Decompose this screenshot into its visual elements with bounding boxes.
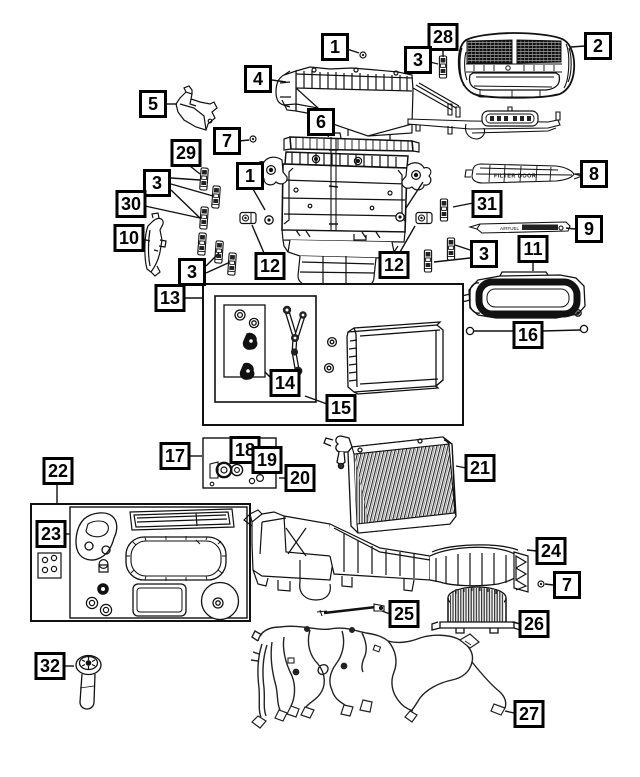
svg-text:3: 3: [187, 262, 197, 282]
svg-text:9: 9: [584, 219, 594, 239]
svg-text:10: 10: [119, 228, 139, 248]
svg-text:15: 15: [331, 398, 351, 418]
svg-text:7: 7: [222, 131, 232, 151]
svg-text:27: 27: [519, 704, 539, 724]
svg-text:A/RFUEL: A/RFUEL: [500, 226, 520, 231]
svg-text:6: 6: [316, 112, 326, 132]
svg-text:5: 5: [148, 94, 158, 114]
svg-text:14: 14: [275, 373, 295, 393]
svg-text:24: 24: [541, 541, 561, 561]
svg-text:20: 20: [290, 468, 310, 488]
svg-text:1: 1: [245, 166, 255, 186]
svg-text:28: 28: [433, 27, 453, 47]
svg-text:2: 2: [593, 36, 603, 56]
svg-text:11: 11: [523, 239, 542, 259]
svg-text:4: 4: [253, 69, 263, 89]
svg-text:26: 26: [524, 614, 544, 634]
svg-text:3: 3: [152, 173, 162, 193]
svg-text:29: 29: [176, 143, 196, 163]
svg-text:17: 17: [165, 446, 185, 466]
svg-text:21: 21: [470, 458, 490, 478]
svg-text:8: 8: [589, 164, 599, 184]
svg-text:FILTER DOOR: FILTER DOOR: [494, 174, 536, 180]
svg-text:23: 23: [41, 524, 61, 544]
svg-text:16: 16: [518, 325, 538, 345]
svg-text:1: 1: [330, 37, 340, 57]
svg-text:13: 13: [160, 288, 180, 308]
svg-text:31: 31: [477, 194, 497, 214]
svg-text:25: 25: [394, 604, 414, 624]
svg-text:32: 32: [40, 656, 60, 676]
svg-text:22: 22: [48, 461, 68, 481]
svg-text:12: 12: [384, 255, 404, 275]
svg-text:19: 19: [257, 450, 277, 470]
svg-text:3: 3: [479, 244, 489, 264]
svg-text:12: 12: [260, 256, 280, 276]
svg-text:3: 3: [413, 50, 423, 70]
svg-text:7: 7: [562, 575, 572, 595]
svg-text:30: 30: [121, 194, 141, 214]
